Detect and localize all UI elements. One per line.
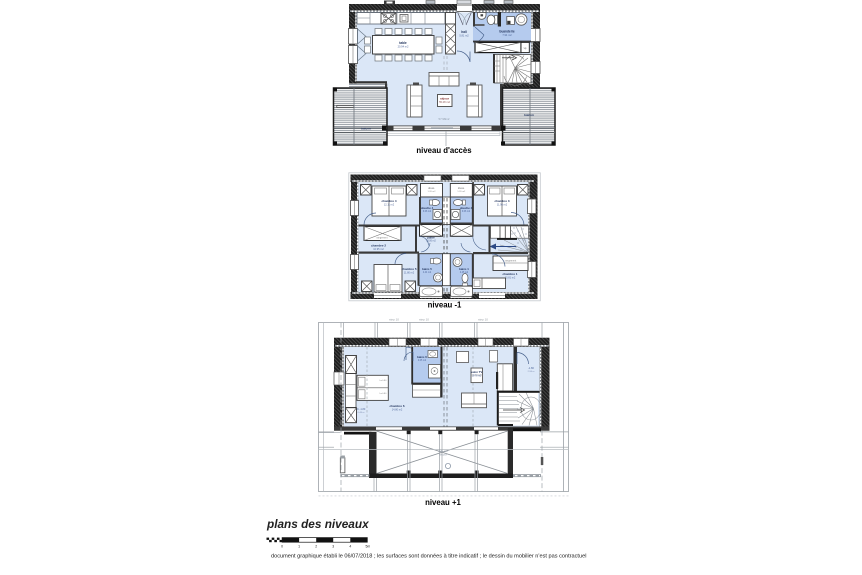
- svg-text:niveau -1: niveau -1: [428, 301, 462, 310]
- svg-text:rangement: rangement: [377, 237, 388, 240]
- svg-text:balcon: balcon: [524, 113, 534, 117]
- svg-text:dress.: dress.: [428, 187, 435, 190]
- svg-text:12.11 m2: 12.11 m2: [384, 204, 395, 207]
- svg-text:rangement: rangement: [505, 260, 517, 263]
- svg-text:séjour: séjour: [439, 453, 447, 457]
- svg-text:chambre 4: chambre 4: [381, 199, 396, 203]
- svg-text:niveau +1: niveau +1: [425, 498, 461, 507]
- svg-text:step 10: step 10: [478, 318, 488, 322]
- svg-text:step 10: step 10: [389, 318, 399, 322]
- svg-text:chambre 3: chambre 3: [494, 199, 509, 203]
- svg-text:balcon: balcon: [361, 127, 371, 131]
- svg-text:chambre 5: chambre 5: [401, 267, 416, 271]
- svg-text:2.94 m: 2.94 m: [528, 371, 535, 373]
- svg-text:3: 3: [332, 545, 334, 549]
- svg-text:5m: 5m: [365, 545, 370, 549]
- svg-text:1.20 m2: 1.20 m2: [428, 191, 437, 193]
- svg-text:1: 1: [298, 545, 300, 549]
- svg-text:57.98m2: 57.98m2: [439, 117, 450, 121]
- svg-text:hall: hall: [461, 30, 467, 34]
- svg-text:douche 3: douche 3: [460, 206, 473, 210]
- svg-text:4.25 m2: 4.25 m2: [460, 272, 469, 274]
- svg-text:chambre 1: chambre 1: [502, 272, 517, 276]
- svg-text:salon TV: salon TV: [471, 370, 483, 374]
- svg-text:step 10: step 10: [419, 318, 429, 322]
- svg-text:niveau d'accès: niveau d'accès: [416, 146, 472, 155]
- svg-text:11.80 m2: 11.80 m2: [404, 272, 415, 275]
- svg-text:3.06 m2: 3.06 m2: [423, 211, 432, 213]
- svg-text:20.94 m2: 20.94 m2: [398, 45, 409, 49]
- svg-text:5.81 m2: 5.81 m2: [459, 34, 469, 38]
- svg-text:55.28 m2: 55.28 m2: [439, 100, 450, 104]
- svg-text:1.20 m2: 1.20 m2: [457, 191, 466, 193]
- svg-text:3.06 m2: 3.06 m2: [462, 211, 471, 213]
- svg-text:14.80 m2: 14.80 m2: [392, 409, 403, 412]
- svg-text:palier: palier: [427, 236, 435, 240]
- svg-text:dress.: dress.: [458, 187, 465, 190]
- svg-text:bains 6: bains 6: [417, 355, 427, 359]
- svg-text:0.46 m: 0.46 m: [358, 412, 365, 414]
- svg-text:h=0.80: h=0.80: [380, 380, 388, 382]
- svg-text:4: 4: [349, 545, 351, 549]
- svg-text:11.96 m2: 11.96 m2: [497, 204, 508, 207]
- svg-text:h=0.80: h=0.80: [380, 393, 388, 395]
- svg-text:document graphique établi le 0: document graphique établi le 06/07/2018 …: [271, 554, 586, 560]
- svg-text:7.94 m2: 7.94 m2: [502, 33, 512, 37]
- svg-text:19.76 m2: 19.76 m2: [472, 376, 482, 378]
- svg-text:table: table: [399, 41, 407, 45]
- svg-text:douche 4: douche 4: [421, 206, 434, 210]
- svg-text:chambre 2: chambre 2: [371, 244, 386, 248]
- svg-text:plans des niveaux: plans des niveaux: [266, 517, 369, 531]
- svg-text:ht -1.80: ht -1.80: [357, 408, 366, 411]
- svg-text:10.81 m2: 10.81 m2: [505, 277, 516, 280]
- svg-text:buanderie: buanderie: [499, 30, 514, 34]
- svg-text:2: 2: [315, 545, 317, 549]
- svg-text:4.44 m2: 4.44 m2: [423, 272, 432, 274]
- svg-text:bains 5: bains 5: [422, 267, 432, 271]
- svg-text:chambre 6: chambre 6: [389, 404, 404, 408]
- svg-text:4.05 m2: 4.05 m2: [418, 360, 427, 362]
- svg-text:0: 0: [281, 545, 283, 549]
- svg-text:séjour: séjour: [440, 97, 450, 101]
- svg-text:-1.80: -1.80: [528, 366, 534, 370]
- svg-text:10.95 m2: 10.95 m2: [373, 248, 384, 251]
- svg-text:bains 1: bains 1: [459, 267, 469, 271]
